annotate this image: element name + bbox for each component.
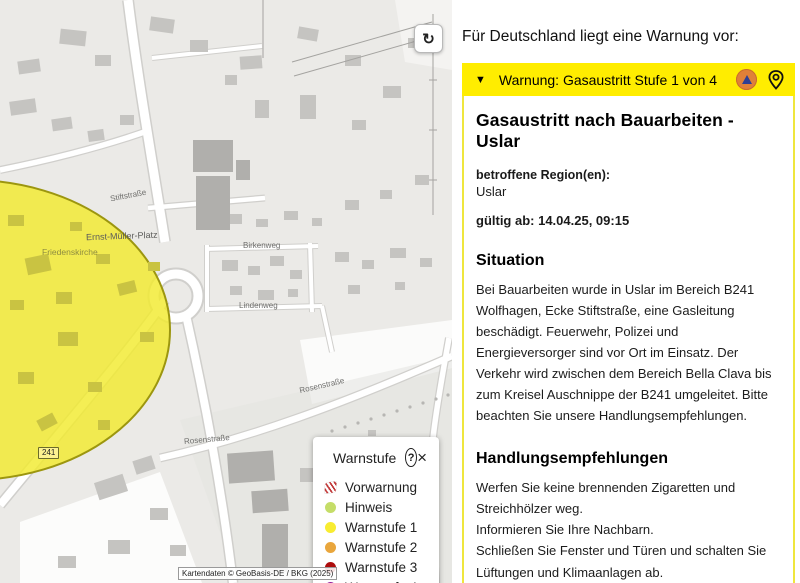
warning-detail-card: Gasaustritt nach Bauarbeiten - Uslar bet… [462,96,795,583]
map-pane: Ernst-Müller-Platz Friedenskirche Birken… [0,0,452,583]
warning-banner[interactable]: ▼ Warnung: Gasaustritt Stufe 1 von 4 [462,63,795,96]
legend-item-label: Warnstufe 1 [345,520,417,535]
recommendation-item: Werfen Sie keine brennenden Zigaretten u… [476,477,781,519]
recommendation-item: Schließen Sie Fenster und Türen und scha… [476,540,781,582]
map-attribution: Kartendaten © GeoBasis-DE / BKG (2025) [178,567,337,580]
civil-protection-icon [736,69,757,90]
chevron-down-icon[interactable]: ▼ [475,74,486,86]
warnstufe2-swatch-icon [325,542,336,553]
region-value: Uslar [476,184,781,199]
valid-from: gültig ab: 14.04.25, 09:15 [476,213,781,228]
legend-item-label: Warnstufe 3 [345,560,417,575]
legend-item-warnstufe-3: Warnstufe 3 [325,560,431,575]
location-pin-icon[interactable] [766,69,786,91]
help-icon[interactable]: ? [405,448,417,467]
warn-app-window: Ernst-Müller-Platz Friedenskirche Birken… [0,0,800,583]
situation-heading: Situation [476,252,781,270]
warnstufe1-swatch-icon [325,522,336,533]
legend-title: Warnstufe [333,450,396,466]
legend-item-hinweis: Hinweis [325,500,431,515]
region-label: betroffene Region(en): [476,168,781,182]
situation-text: Bei Bauarbeiten wurde in Uslar im Bereic… [476,279,781,426]
country-warning-intro: Für Deutschland liegt eine Warnung vor: [462,28,795,46]
legend-item-label: Hinweis [345,500,392,515]
legend-item-warnstufe-1: Warnstufe 1 [325,520,431,535]
reset-orientation-icon: ↻ [422,30,435,48]
recommendation-item: Informieren Sie Ihre Nachbarn. [476,519,781,540]
close-icon[interactable]: × [417,449,427,466]
recommendations-heading: Handlungsempfehlungen [476,450,781,468]
vorwarnung-swatch-icon [324,481,336,493]
warning-detail-pane: Für Deutschland liegt eine Warnung vor: … [452,0,800,583]
warning-banner-label: Warnung: Gasaustritt Stufe 1 von 4 [499,72,717,88]
legend-item-label: Vorwarnung [345,480,417,495]
warning-level-legend: Warnstufe ? × Vorwarnung Hinweis Warnstu… [313,437,439,583]
legend-item-warnstufe-2: Warnstufe 2 [325,540,431,555]
warning-title: Gasaustritt nach Bauarbeiten - Uslar [476,110,781,152]
legend-item-vorwarnung: Vorwarnung [325,480,431,495]
legend-item-label: Warnstufe 2 [345,540,417,555]
hinweis-swatch-icon [325,502,336,513]
map-reset-button[interactable]: ↻ [414,24,443,53]
road-number-badge: 241 [38,447,59,459]
